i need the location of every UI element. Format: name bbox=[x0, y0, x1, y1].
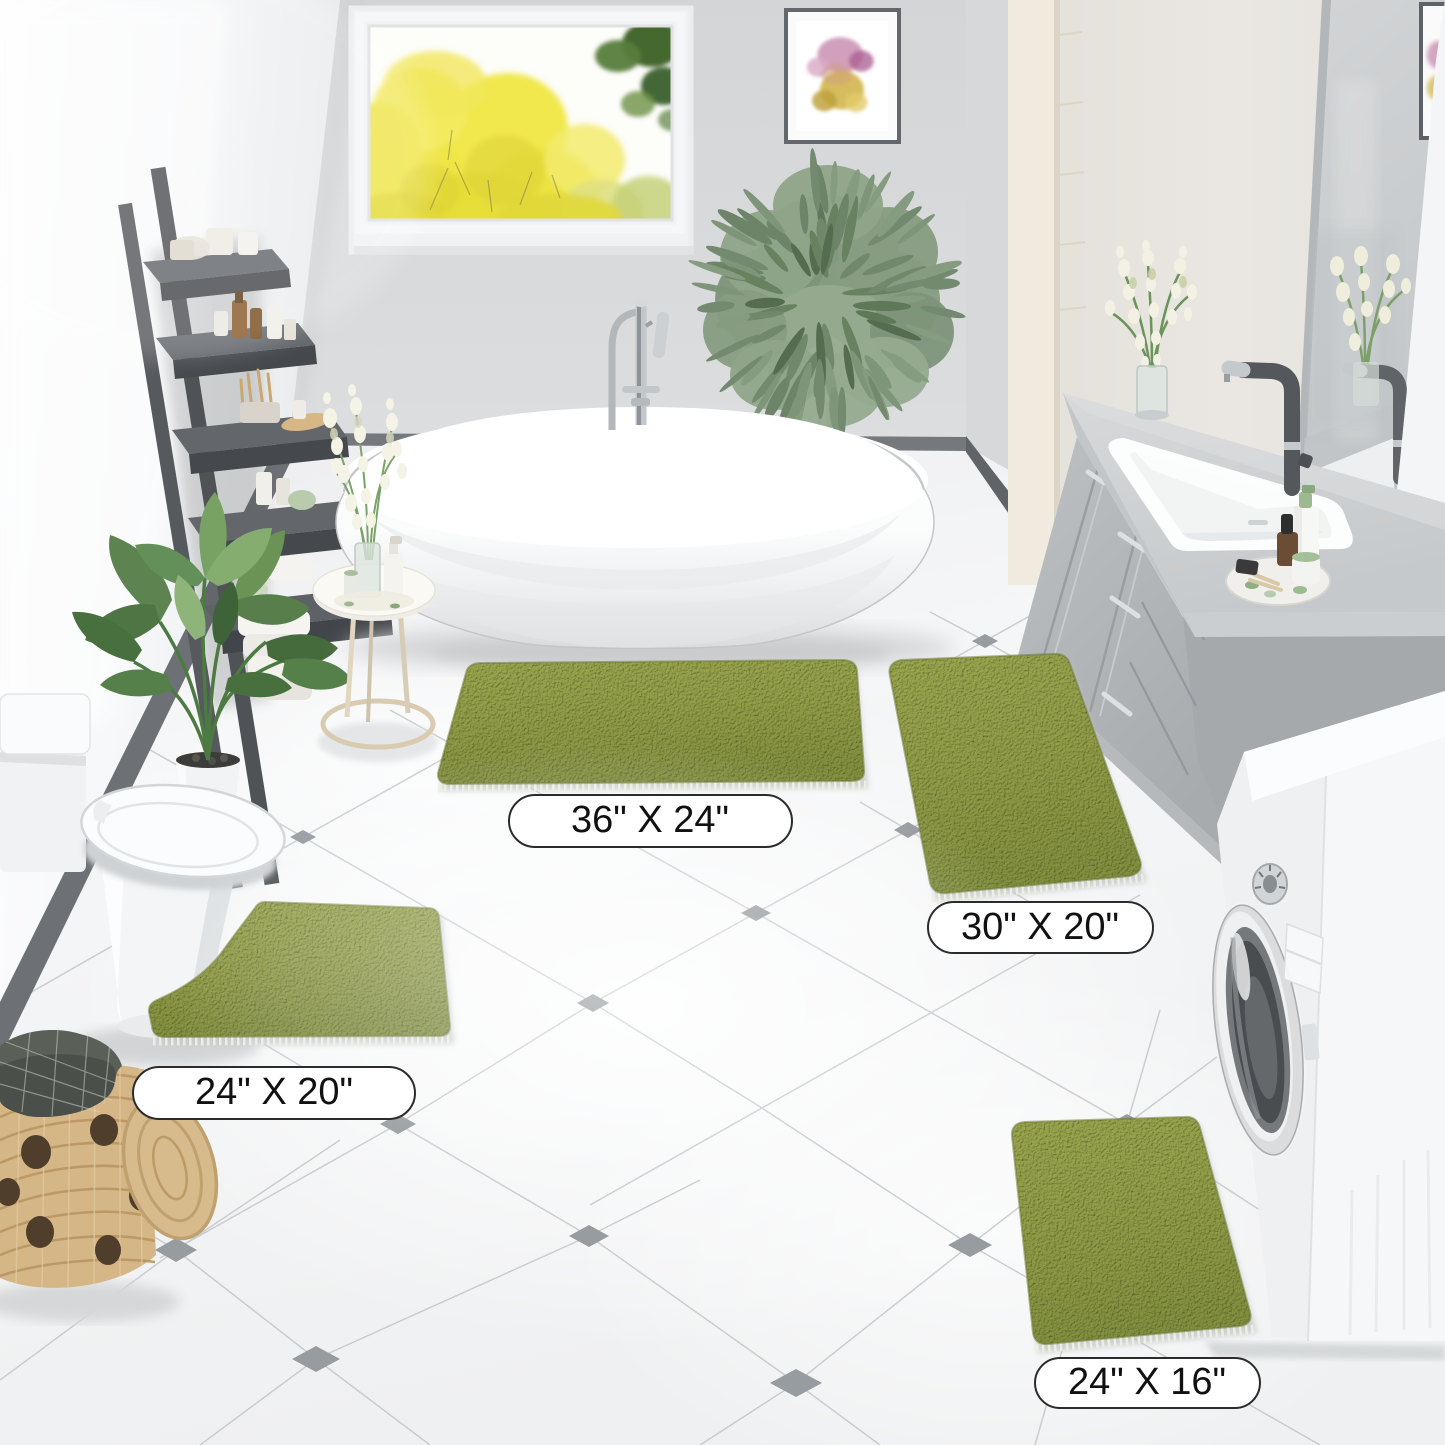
svg-text:30" X 20": 30" X 20" bbox=[961, 906, 1119, 948]
svg-text:36" X 24": 36" X 24" bbox=[571, 799, 729, 841]
svg-text:24" X 16": 24" X 16" bbox=[1068, 1361, 1226, 1403]
svg-text:24" X 20": 24" X 20" bbox=[195, 1071, 353, 1113]
